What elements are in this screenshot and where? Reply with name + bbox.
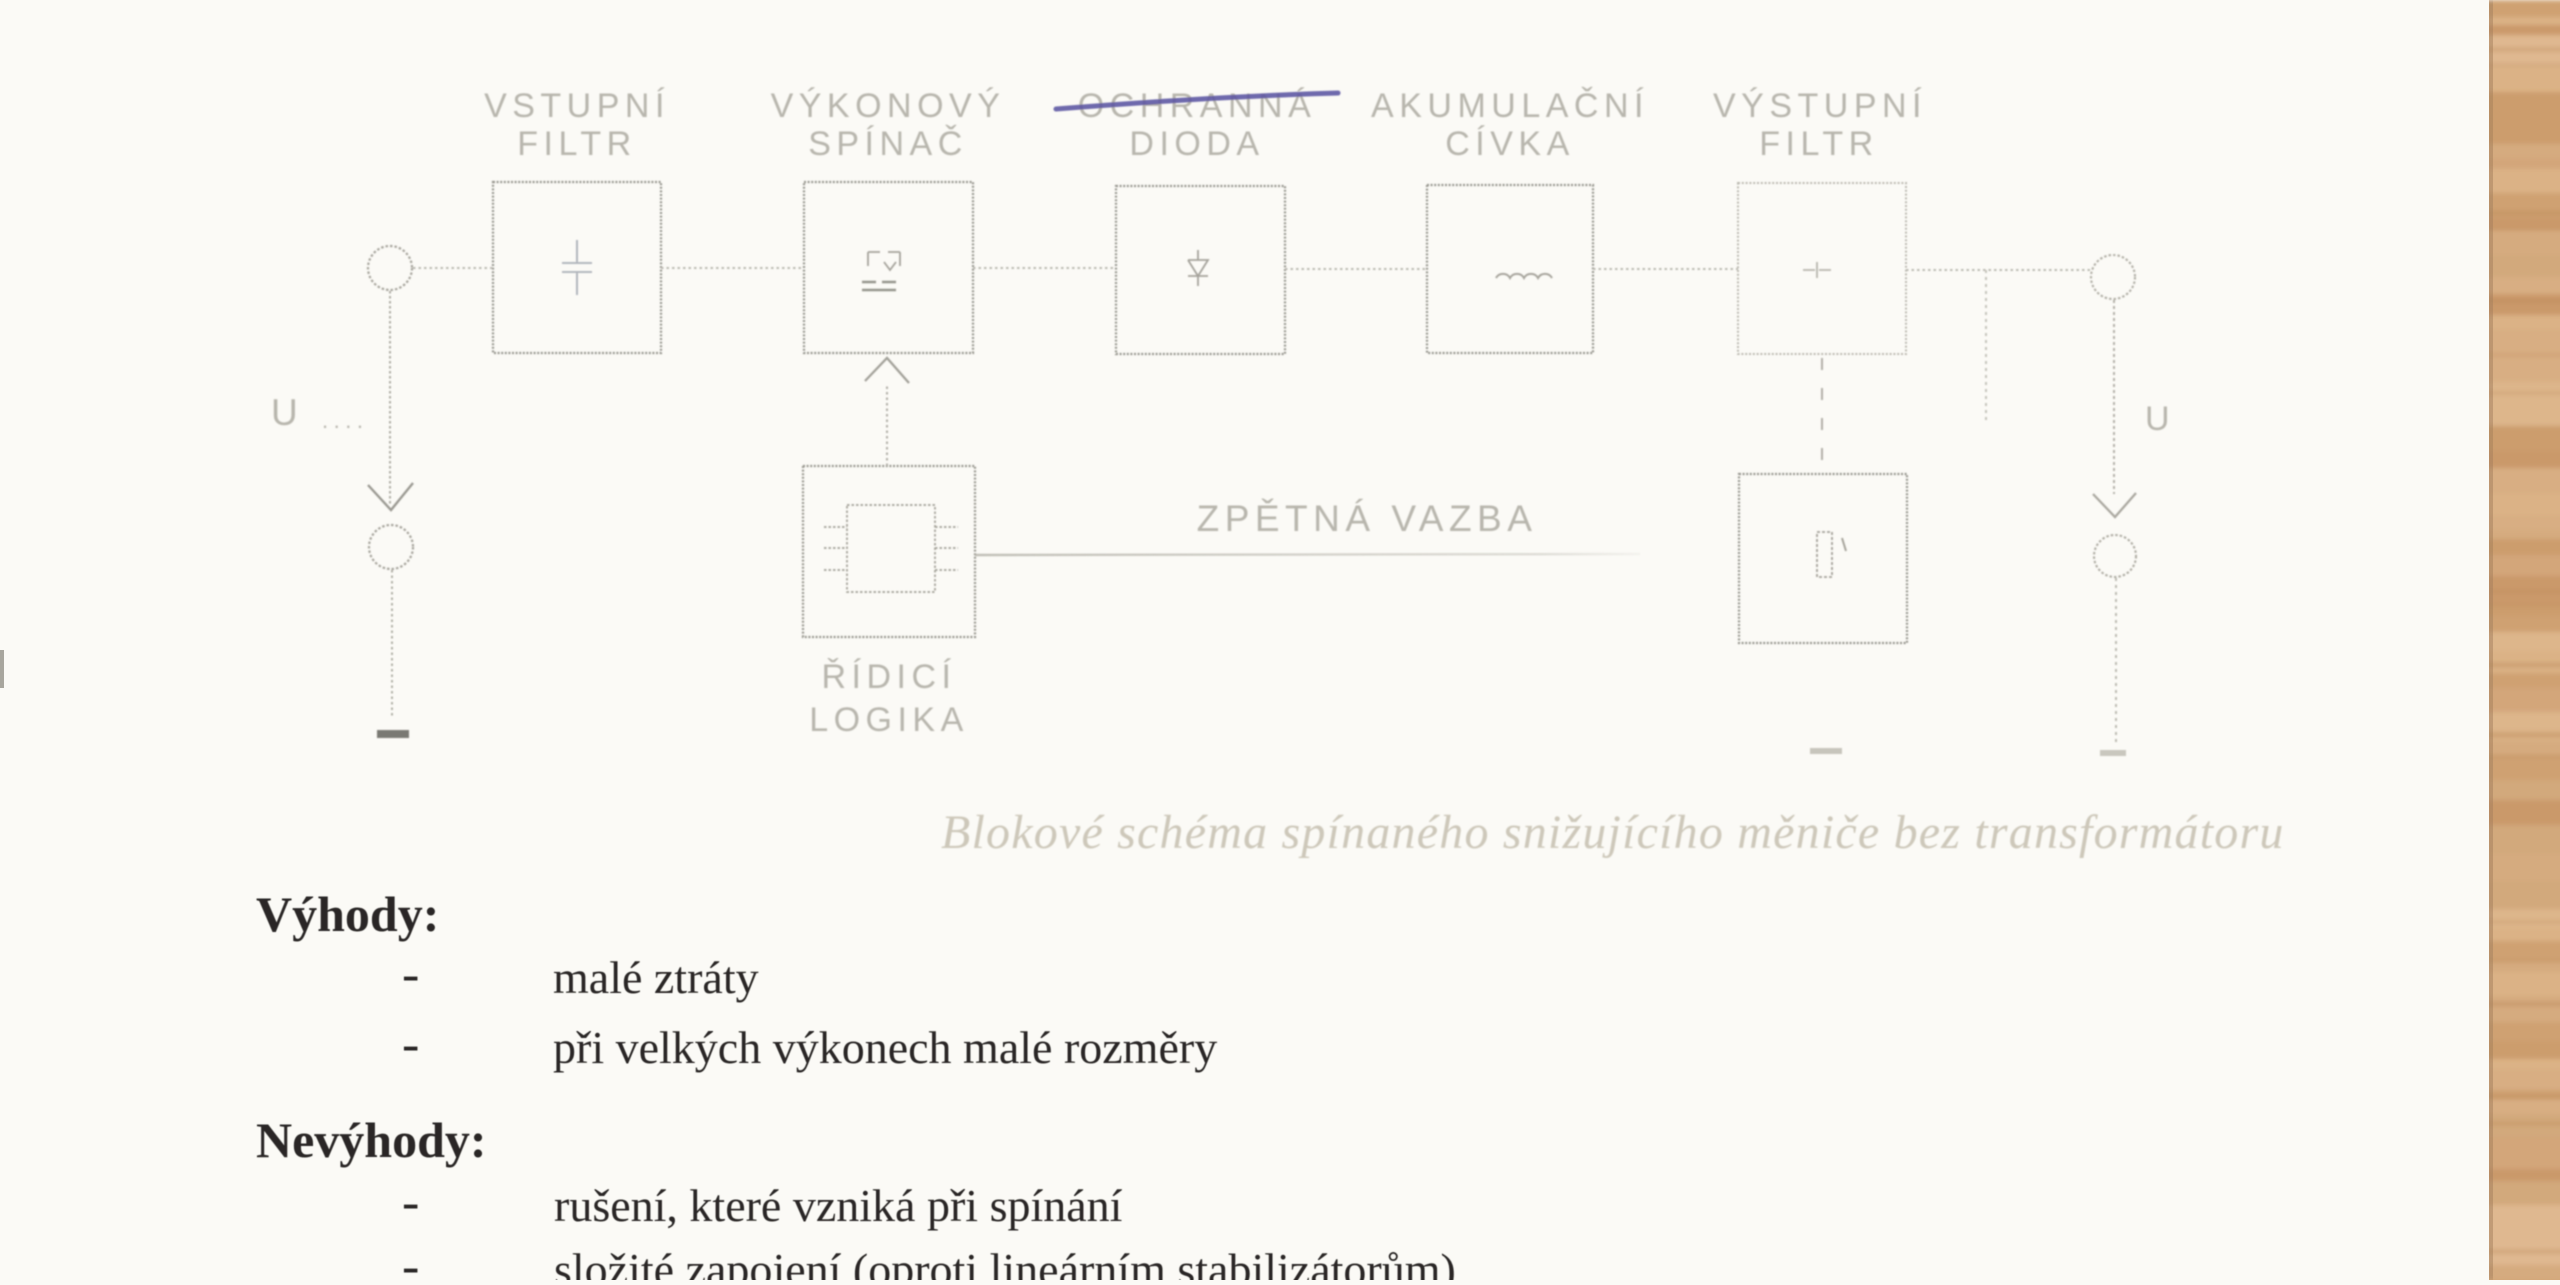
svg-text:VÝSTUPNÍ: VÝSTUPNÍ [1713,87,1927,125]
svg-text:....: .... [322,408,368,433]
svg-text:ZPĚTNÁ VAZBA: ZPĚTNÁ VAZBA [1197,498,1538,539]
svg-text:malé ztráty: malé ztráty [553,952,759,1003]
svg-text:Výhody:: Výhody: [256,886,439,942]
svg-text:LOGIKA: LOGIKA [809,701,969,739]
svg-text:VSTUPNÍ: VSTUPNÍ [484,87,670,125]
svg-text:CÍVKA: CÍVKA [1445,125,1575,163]
svg-text:AKUMULAČNÍ: AKUMULAČNÍ [1371,87,1649,125]
svg-text:-: - [402,946,419,1003]
svg-text:rušení, které vzniká při spíná: rušení, které vzniká při spínání [554,1180,1123,1231]
svg-text:DIODA: DIODA [1129,125,1264,163]
svg-text:-: - [402,1174,419,1231]
svg-text:Blokové schéma spínaného snižu: Blokové schéma spínaného snižujícího měn… [941,806,2285,859]
svg-text:-: - [402,1016,419,1073]
svg-text:U: U [271,392,303,433]
svg-text:VÝKONOVÝ: VÝKONOVÝ [771,87,1006,125]
svg-text:při velkých výkonech malé rozm: při velkých výkonech malé rozměry [553,1022,1217,1073]
svg-text:Nevýhody:: Nevýhody: [256,1112,487,1168]
svg-text:-: - [402,1238,419,1280]
svg-text:U: U [2145,400,2175,438]
svg-text:složité zapojení (oproti lineá: složité zapojení (oproti lineárním stabi… [554,1244,1456,1280]
svg-text:FILTR: FILTR [517,125,636,163]
svg-text:ŘÍDICÍ: ŘÍDICÍ [822,658,957,696]
svg-text:SPÍNAČ: SPÍNAČ [808,125,968,163]
svg-text:FILTR: FILTR [1759,125,1878,163]
